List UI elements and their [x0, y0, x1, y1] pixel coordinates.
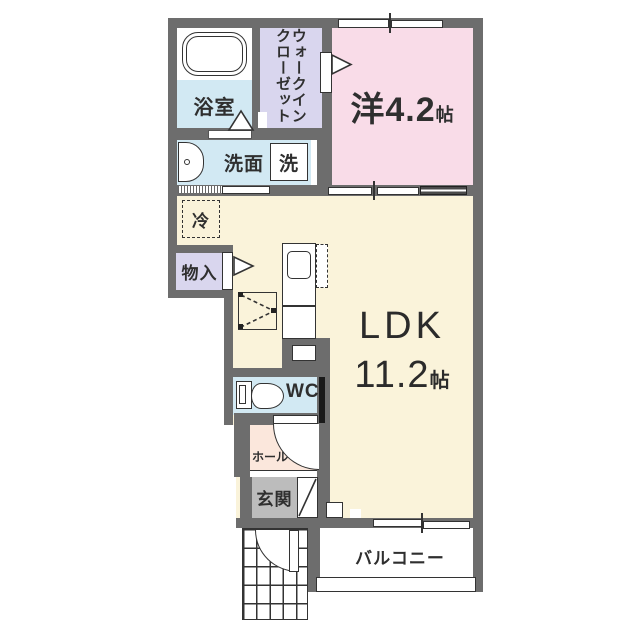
- washroom-door: [222, 186, 270, 194]
- kitchen-sink-icon: [287, 251, 311, 279]
- floor-plan: 浴室 ウォークインクローゼット 洋4.2帖 洗面 玄関: [0, 0, 640, 640]
- closet-door-jamb: [258, 112, 267, 128]
- washer-box: 洗: [270, 143, 308, 181]
- window-top-pane: [391, 20, 443, 28]
- sliding-door-panel-dark: [420, 186, 467, 195]
- washbasin-drain: [184, 159, 190, 165]
- washroom-label: 洗面: [224, 149, 264, 176]
- storage-label: 物入: [182, 259, 218, 284]
- bathroom-door: [208, 130, 252, 139]
- front-door-panel: [289, 530, 299, 572]
- western-room-label: 洋4.2帖: [350, 82, 454, 131]
- ldk-name: LDK: [332, 305, 472, 348]
- hall-step: [250, 470, 325, 477]
- wall-niche-box: [326, 502, 343, 518]
- hall-label: ホール: [252, 448, 288, 465]
- wc-hall-door: [273, 415, 318, 424]
- room-bathroom: 浴室: [177, 80, 252, 130]
- threshold-hatch: [178, 186, 222, 193]
- room-entrance: 玄関: [252, 477, 297, 518]
- entrance-label: 玄関: [257, 485, 293, 510]
- bathroom-label: 浴室: [194, 91, 236, 120]
- room-storage: 物入: [176, 253, 223, 290]
- kitchen-lower-box: [292, 345, 316, 361]
- wc-label: WC: [286, 381, 320, 403]
- entrance-closet: [297, 477, 318, 518]
- room-western: 洋4.2帖: [332, 28, 473, 185]
- balcony-label: バルコニー: [330, 544, 470, 569]
- window-tick: [389, 13, 391, 33]
- western-door: [320, 52, 332, 93]
- toilet-tank: [236, 381, 252, 409]
- bathtub-icon: [182, 32, 247, 76]
- walk-in-closet-label: ウォークインクローゼット: [274, 28, 306, 128]
- folding-door-box: [238, 292, 277, 330]
- wall-niche-small: [350, 509, 361, 518]
- kitchen-divider: [282, 305, 316, 307]
- window-top-pane: [338, 19, 389, 28]
- wall: [234, 425, 250, 477]
- refrigerator-label: 冷: [192, 207, 210, 232]
- balcony-window-tick: [421, 513, 423, 533]
- storage-door: [222, 252, 233, 290]
- outside-area: [168, 298, 224, 428]
- room-walk-in-closet: ウォークインクローゼット: [258, 28, 322, 128]
- wall: [236, 518, 320, 528]
- kitchen-dashed-counter: [316, 244, 328, 288]
- sliding-door-panel: [328, 187, 372, 195]
- refrigerator-box: 冷: [182, 200, 220, 238]
- outside-area: [168, 425, 236, 528]
- wall: [317, 140, 332, 185]
- wall: [168, 290, 233, 298]
- wc-door-jamb: [319, 377, 325, 423]
- bathtub-inner-line: [186, 36, 243, 72]
- sliding-door-tick: [373, 181, 375, 200]
- balcony-window-pane: [423, 521, 470, 529]
- toilet-tank-inner: [239, 385, 246, 404]
- washer-label: 洗: [279, 149, 299, 176]
- wall: [224, 298, 233, 377]
- ldk-unit: 帖: [430, 364, 450, 393]
- sliding-door-panel: [377, 187, 419, 195]
- balcony-railing: [316, 577, 476, 592]
- ldk-size: 11.2: [354, 354, 429, 397]
- wall: [224, 377, 233, 425]
- toilet-bowl-icon: [251, 383, 284, 409]
- balcony-window-pane: [373, 519, 422, 527]
- ldk-label: LDK 11.2 帖: [332, 305, 472, 397]
- wall: [473, 18, 483, 528]
